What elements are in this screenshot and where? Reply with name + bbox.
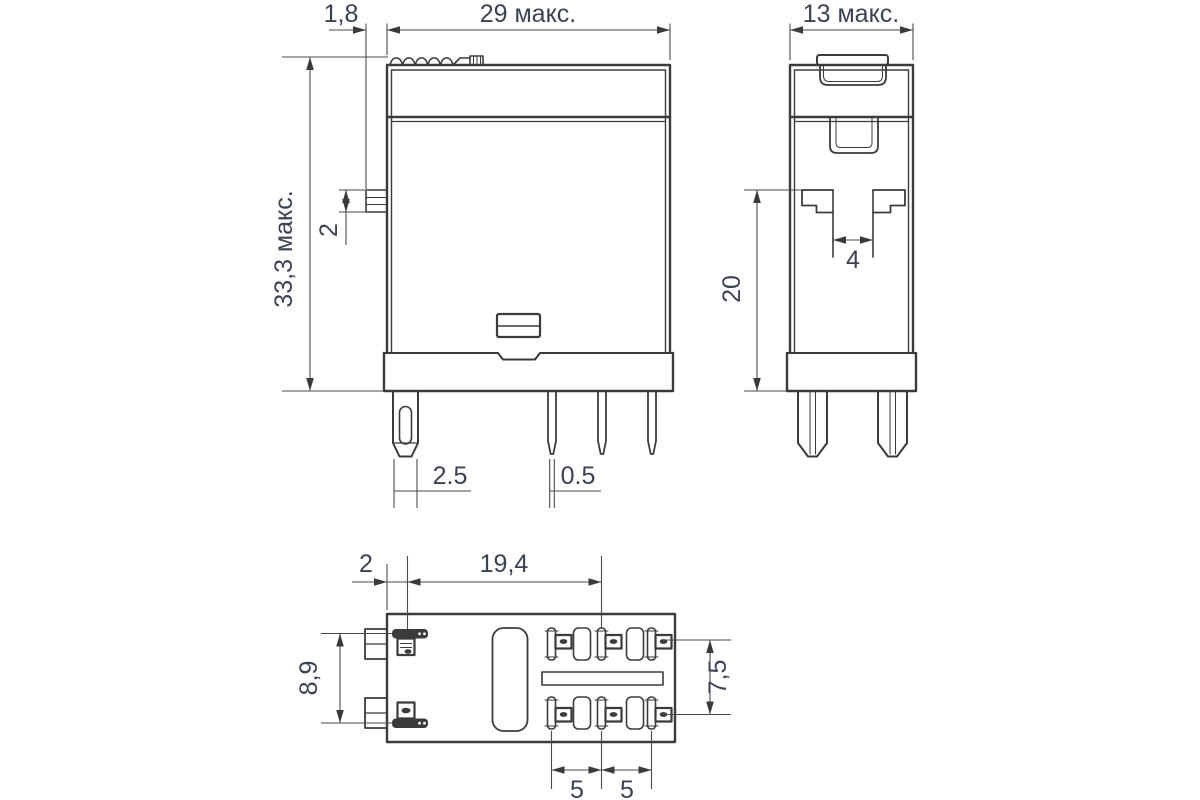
dim-label-side-width: 13 макс. xyxy=(803,0,900,28)
dim-label-front-height: 33,3 макс. xyxy=(270,190,298,307)
contact-terminals-bottom-row xyxy=(545,697,672,729)
top-clip-tab xyxy=(817,55,888,65)
contact-pin-blade xyxy=(548,697,556,729)
contact-slot-opening xyxy=(627,628,644,660)
contact-slot-opening xyxy=(574,628,591,660)
dim-label-contact-pitch-1: 5 xyxy=(570,776,584,800)
grip-end-block-hatch xyxy=(474,56,481,65)
dim-latch-height: 2 xyxy=(315,190,368,245)
contact-pin-slot-mark xyxy=(610,639,618,644)
relay-dimension-drawing: 29 макс. 1,8 33,3 макс. 2 2.5 xyxy=(0,0,1200,800)
dim-label-coil-pin-width: 2.5 xyxy=(433,462,468,490)
drawing-canvas: 29 макс. 1,8 33,3 макс. 2 2.5 xyxy=(0,0,1200,800)
coil-terminal-bottom-slot-mark xyxy=(402,708,411,714)
mount-hook-right xyxy=(873,190,905,213)
coil-terminal-bottom-bar xyxy=(392,719,428,729)
contact-pin-slot-mark xyxy=(610,712,618,717)
contact-pin-blade xyxy=(548,628,556,660)
dim-front-width: 29 макс. xyxy=(387,0,670,60)
pin-side-right-blade-lines xyxy=(890,391,896,454)
coil-terminal-top-bar xyxy=(392,629,428,639)
pin-side-right xyxy=(878,391,907,457)
dim-coil-pin-width: 2.5 xyxy=(394,459,471,508)
relay-body-front-outline xyxy=(387,65,670,353)
coil-terminal-top-dot xyxy=(418,632,421,635)
dim-latch-offset: 1,8 xyxy=(324,0,366,189)
pin-side-left-blade-lines xyxy=(810,391,816,454)
dim-hook-slot-width: 4 xyxy=(833,240,873,274)
bottom-view-outline xyxy=(387,614,675,742)
dim-edge-to-coil: 2 xyxy=(352,550,408,629)
dim-label-front-width: 29 макс. xyxy=(480,0,577,28)
relay-body-front-inner-wall xyxy=(392,70,666,353)
side-latch-tab-ribs xyxy=(366,198,387,205)
top-clip-bracket-inner xyxy=(824,65,883,82)
contact-terminals-top-row xyxy=(545,628,672,660)
dim-label-edge-to-coil: 2 xyxy=(359,550,373,578)
dim-side-width: 13 макс. xyxy=(790,0,913,60)
coil-terminal-top-dot xyxy=(423,632,426,635)
dim-label-contact-pitch-2: 5 xyxy=(620,776,634,800)
dim-mount-depth: 20 xyxy=(718,190,801,391)
dim-label-contact-pin-width: 0.5 xyxy=(561,462,596,490)
dim-contact-pin-width: 0.5 xyxy=(550,459,601,508)
dim-label-coil-pin-span: 8,9 xyxy=(295,661,323,696)
contact-pin-slot-mark xyxy=(560,639,568,644)
contact-pin-blade xyxy=(648,628,656,660)
coil-terminal-top-box-lines xyxy=(401,644,412,648)
dim-label-contact-row-span: 7,5 xyxy=(704,660,732,695)
coil-terminal-bottom-dot xyxy=(418,722,421,725)
dim-label-latch-offset: 1,8 xyxy=(324,0,359,28)
contact-slot-opening xyxy=(574,697,591,729)
contact-pin-blade xyxy=(598,628,606,660)
side-view: 13 макс. 20 4 xyxy=(718,0,916,457)
front-view: 29 макс. 1,8 33,3 макс. 2 2.5 xyxy=(270,0,673,508)
contact-pin-blade xyxy=(598,697,606,729)
contact-pin-front-2 xyxy=(598,391,606,454)
contact-slot-opening xyxy=(627,697,644,729)
coil-terminal-bottom-dot xyxy=(423,722,426,725)
dim-label-hook-slot-width: 4 xyxy=(846,246,860,274)
bottom-view: 2 19,4 8,9 7,5 5 5 xyxy=(295,550,732,800)
contact-pin-front-1 xyxy=(548,391,556,454)
center-slot xyxy=(493,628,528,731)
dim-label-mount-depth: 20 xyxy=(718,275,746,303)
dim-coil-pin-span: 8,9 xyxy=(295,634,393,724)
contact-pin-blade xyxy=(648,697,656,729)
mount-hook-left xyxy=(802,190,833,213)
relay-body-side-outline xyxy=(790,65,913,353)
coil-terminal-top-slot-mark xyxy=(405,649,412,653)
pin-side-left xyxy=(798,391,827,457)
coil-pin-front xyxy=(393,391,418,457)
base-side-outline xyxy=(787,353,916,391)
contact-pin-slot-mark xyxy=(560,712,568,717)
coil-pin-slot-hole xyxy=(400,407,412,445)
center-bar xyxy=(542,672,663,685)
side-latch-tab xyxy=(366,190,387,212)
dim-label-coil-to-contact: 19,4 xyxy=(480,550,529,578)
dim-coil-to-contact: 19,4 xyxy=(408,550,602,628)
dim-label-latch-height: 2 xyxy=(315,223,343,237)
base-front-top-edge-notch xyxy=(384,353,673,360)
dim-contact-row-span: 7,5 xyxy=(663,640,732,715)
contact-pin-front-3 xyxy=(648,391,656,454)
